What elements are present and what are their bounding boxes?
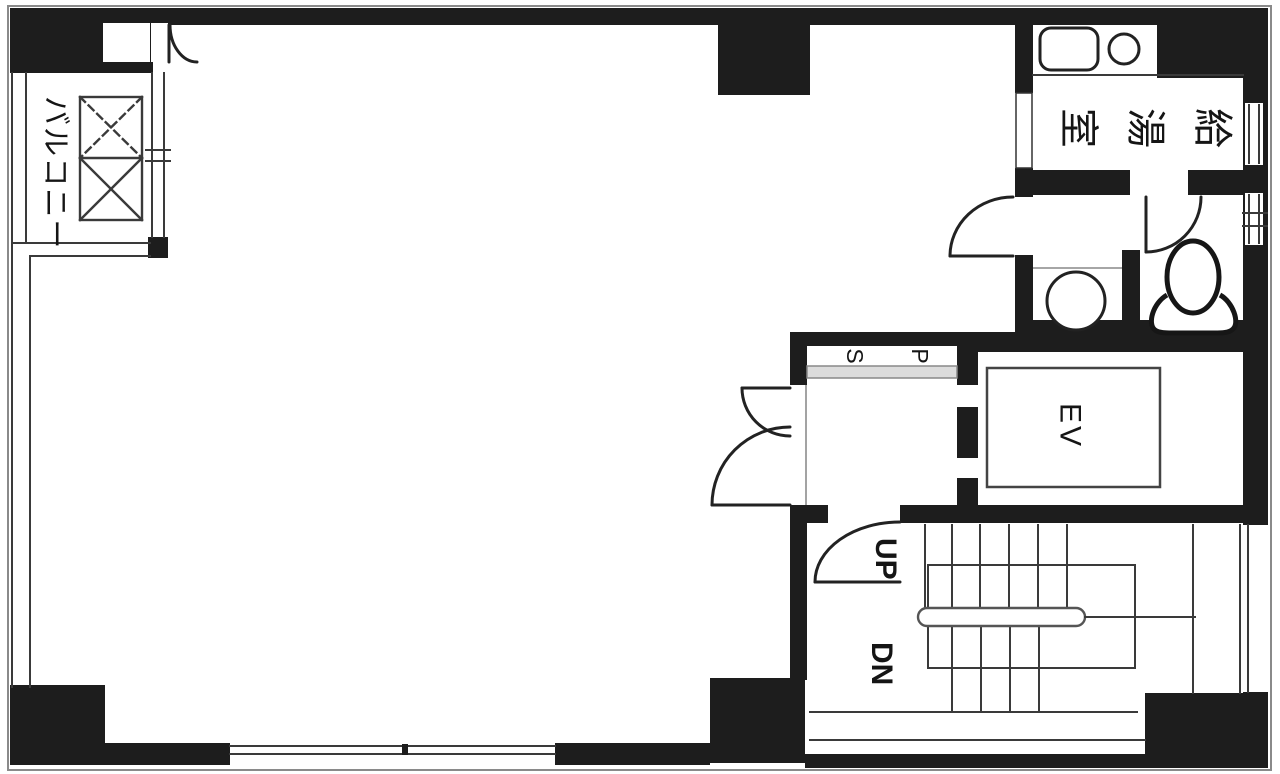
opening-toilet-window (1245, 193, 1263, 245)
elevator-label: EV (1054, 403, 1087, 449)
wall-kitchen-west-upper (1015, 20, 1033, 93)
wall-bottomleft-block (10, 685, 105, 765)
kitchenette-char-3: 室 (1056, 108, 1100, 148)
opening-kitchen-doorway (1016, 93, 1032, 168)
stairs-up-label: UP (869, 538, 902, 580)
kitchenette-char-1: 給 (1190, 108, 1234, 148)
opening-toilet-inner-doorway (1130, 170, 1188, 195)
kitchen-sink-icon (1040, 28, 1098, 70)
pipe-space-char-p: P (907, 348, 933, 363)
kitchen-burner-icon (1109, 34, 1139, 64)
wall-top-band (30, 8, 1268, 25)
wall-stair-west (790, 523, 807, 680)
pipe-space-char-s: S (842, 348, 868, 363)
wall-bottom-band-left (105, 743, 230, 765)
kitchenette-label: 室 湯 給 (1056, 108, 1234, 148)
wall-top-pillar (718, 25, 810, 95)
south-window-mullion (402, 744, 408, 755)
balcony-label: バルコニー (39, 96, 71, 250)
stair-handrail (918, 608, 1085, 626)
wall-southwest-stair-block (710, 678, 805, 763)
wash-basin-icon (1047, 272, 1105, 330)
wall-bottom-band-mid (555, 743, 710, 765)
stairs-down-label: DN (865, 642, 898, 685)
wall-hall-west-stub (790, 352, 807, 385)
toilet-bowl (1167, 241, 1219, 313)
opening-topleft-window (103, 23, 150, 62)
wall-ev-separator (957, 340, 978, 523)
opening-ev-door-lower (957, 458, 978, 478)
opening-stair-doorway (828, 505, 900, 523)
opening-pipe-space-strip (807, 346, 957, 366)
opening-stair-window (1240, 525, 1268, 692)
floor-plan-canvas: バルコニー 室 湯 給 (0, 0, 1280, 774)
opening-ev-door-upper (957, 385, 978, 407)
opening-kitchen-window (1245, 103, 1263, 165)
wall-balcony-sill-block (148, 237, 168, 258)
elevator: EV (987, 368, 1160, 487)
floor-plan-page: バルコニー 室 湯 給 (0, 0, 1280, 774)
opening-topleft-door (151, 23, 168, 62)
kitchenette-char-2: 湯 (1123, 108, 1167, 148)
hall-threshold-sill (807, 366, 957, 378)
